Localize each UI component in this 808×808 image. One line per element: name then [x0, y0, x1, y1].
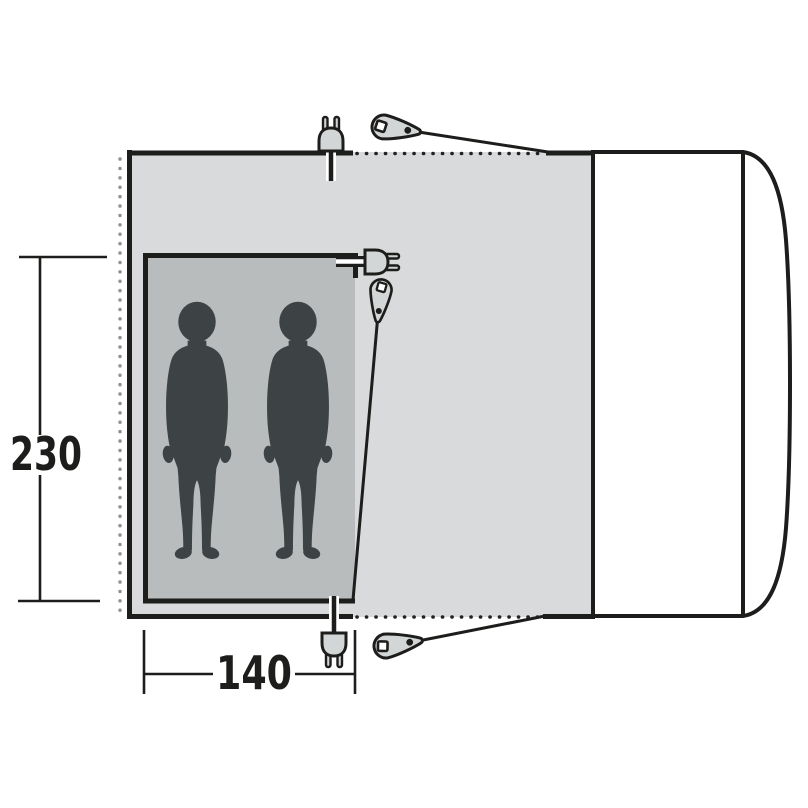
plug-body — [319, 128, 343, 151]
guy-line-top — [412, 131, 548, 152]
guy-line-bottom — [413, 616, 545, 642]
peg-hole — [376, 282, 386, 292]
height-dimension-label: 230 — [10, 427, 82, 481]
tent-floorplan-diagram: 230 140 — [0, 0, 808, 808]
guy-peg-icon-top — [370, 113, 422, 144]
height-dimension: 230 — [9, 257, 107, 601]
peg-hole — [375, 120, 387, 132]
peg-hole — [378, 641, 388, 651]
power-plug-icon-bottom — [322, 633, 346, 667]
width-dimension-label: 140 — [216, 646, 292, 700]
plug-body — [365, 250, 388, 274]
guy-peg-icon-bottom — [372, 628, 424, 659]
vehicle-outline — [593, 152, 790, 616]
plug-body — [322, 633, 346, 656]
power-plug-icon-top — [319, 117, 343, 151]
floorplan-svg: 230 140 — [0, 0, 808, 808]
vehicle-body — [593, 152, 790, 616]
